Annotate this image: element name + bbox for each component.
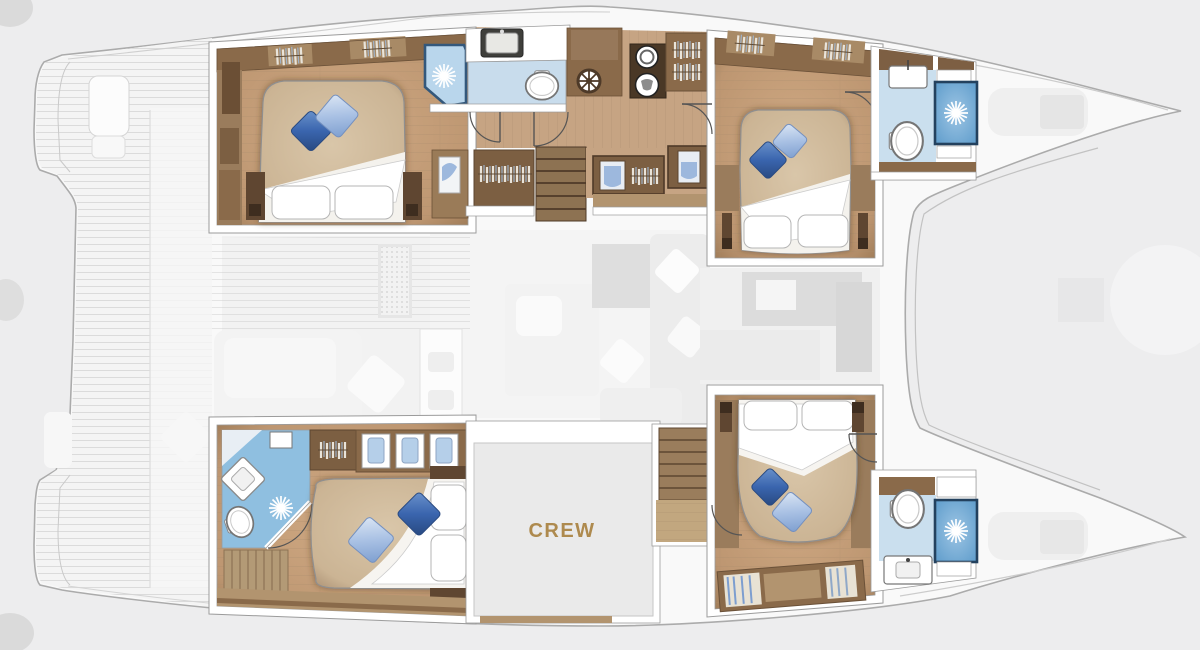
svg-text:CREW: CREW bbox=[528, 520, 595, 542]
